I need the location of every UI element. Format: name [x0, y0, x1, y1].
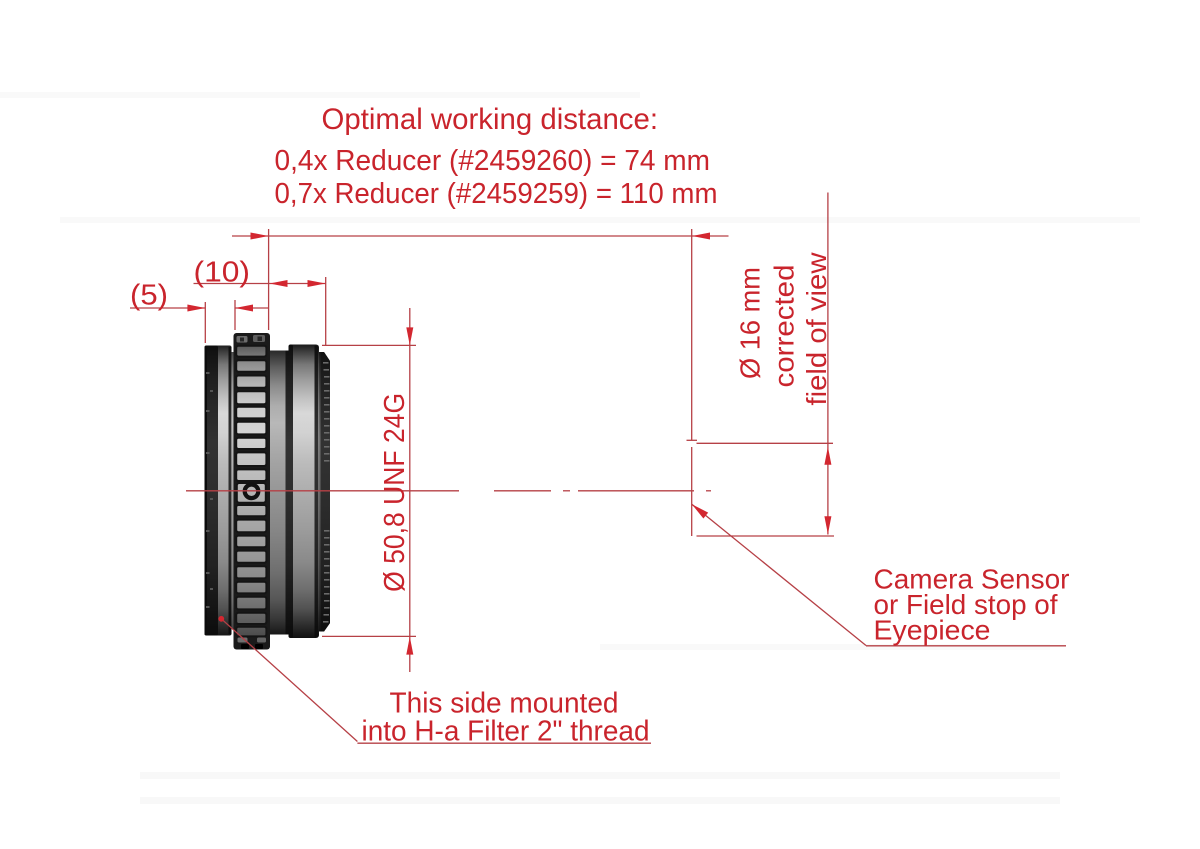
svg-text:(5): (5): [130, 280, 168, 312]
svg-text:into H-a Filter 2" thread: into H-a Filter 2" thread: [362, 716, 650, 748]
svg-text:Ø 50,8 UNF 24G: Ø 50,8 UNF 24G: [379, 393, 411, 592]
svg-text:Ø 16 mm: Ø 16 mm: [735, 267, 766, 379]
svg-text:field of view: field of view: [801, 252, 832, 406]
svg-text:Eyepiece: Eyepiece: [874, 615, 991, 646]
svg-text:0,7x Reducer (#2459259) = 110: 0,7x Reducer (#2459259) = 110 mm: [275, 178, 718, 210]
svg-text:Optimal working distance:: Optimal working distance:: [322, 103, 659, 136]
svg-text:(10): (10): [194, 257, 251, 289]
svg-text:0,4x Reducer (#2459260) = 74 m: 0,4x Reducer (#2459260) = 74 mm: [275, 145, 711, 177]
svg-text:corrected: corrected: [769, 265, 800, 388]
